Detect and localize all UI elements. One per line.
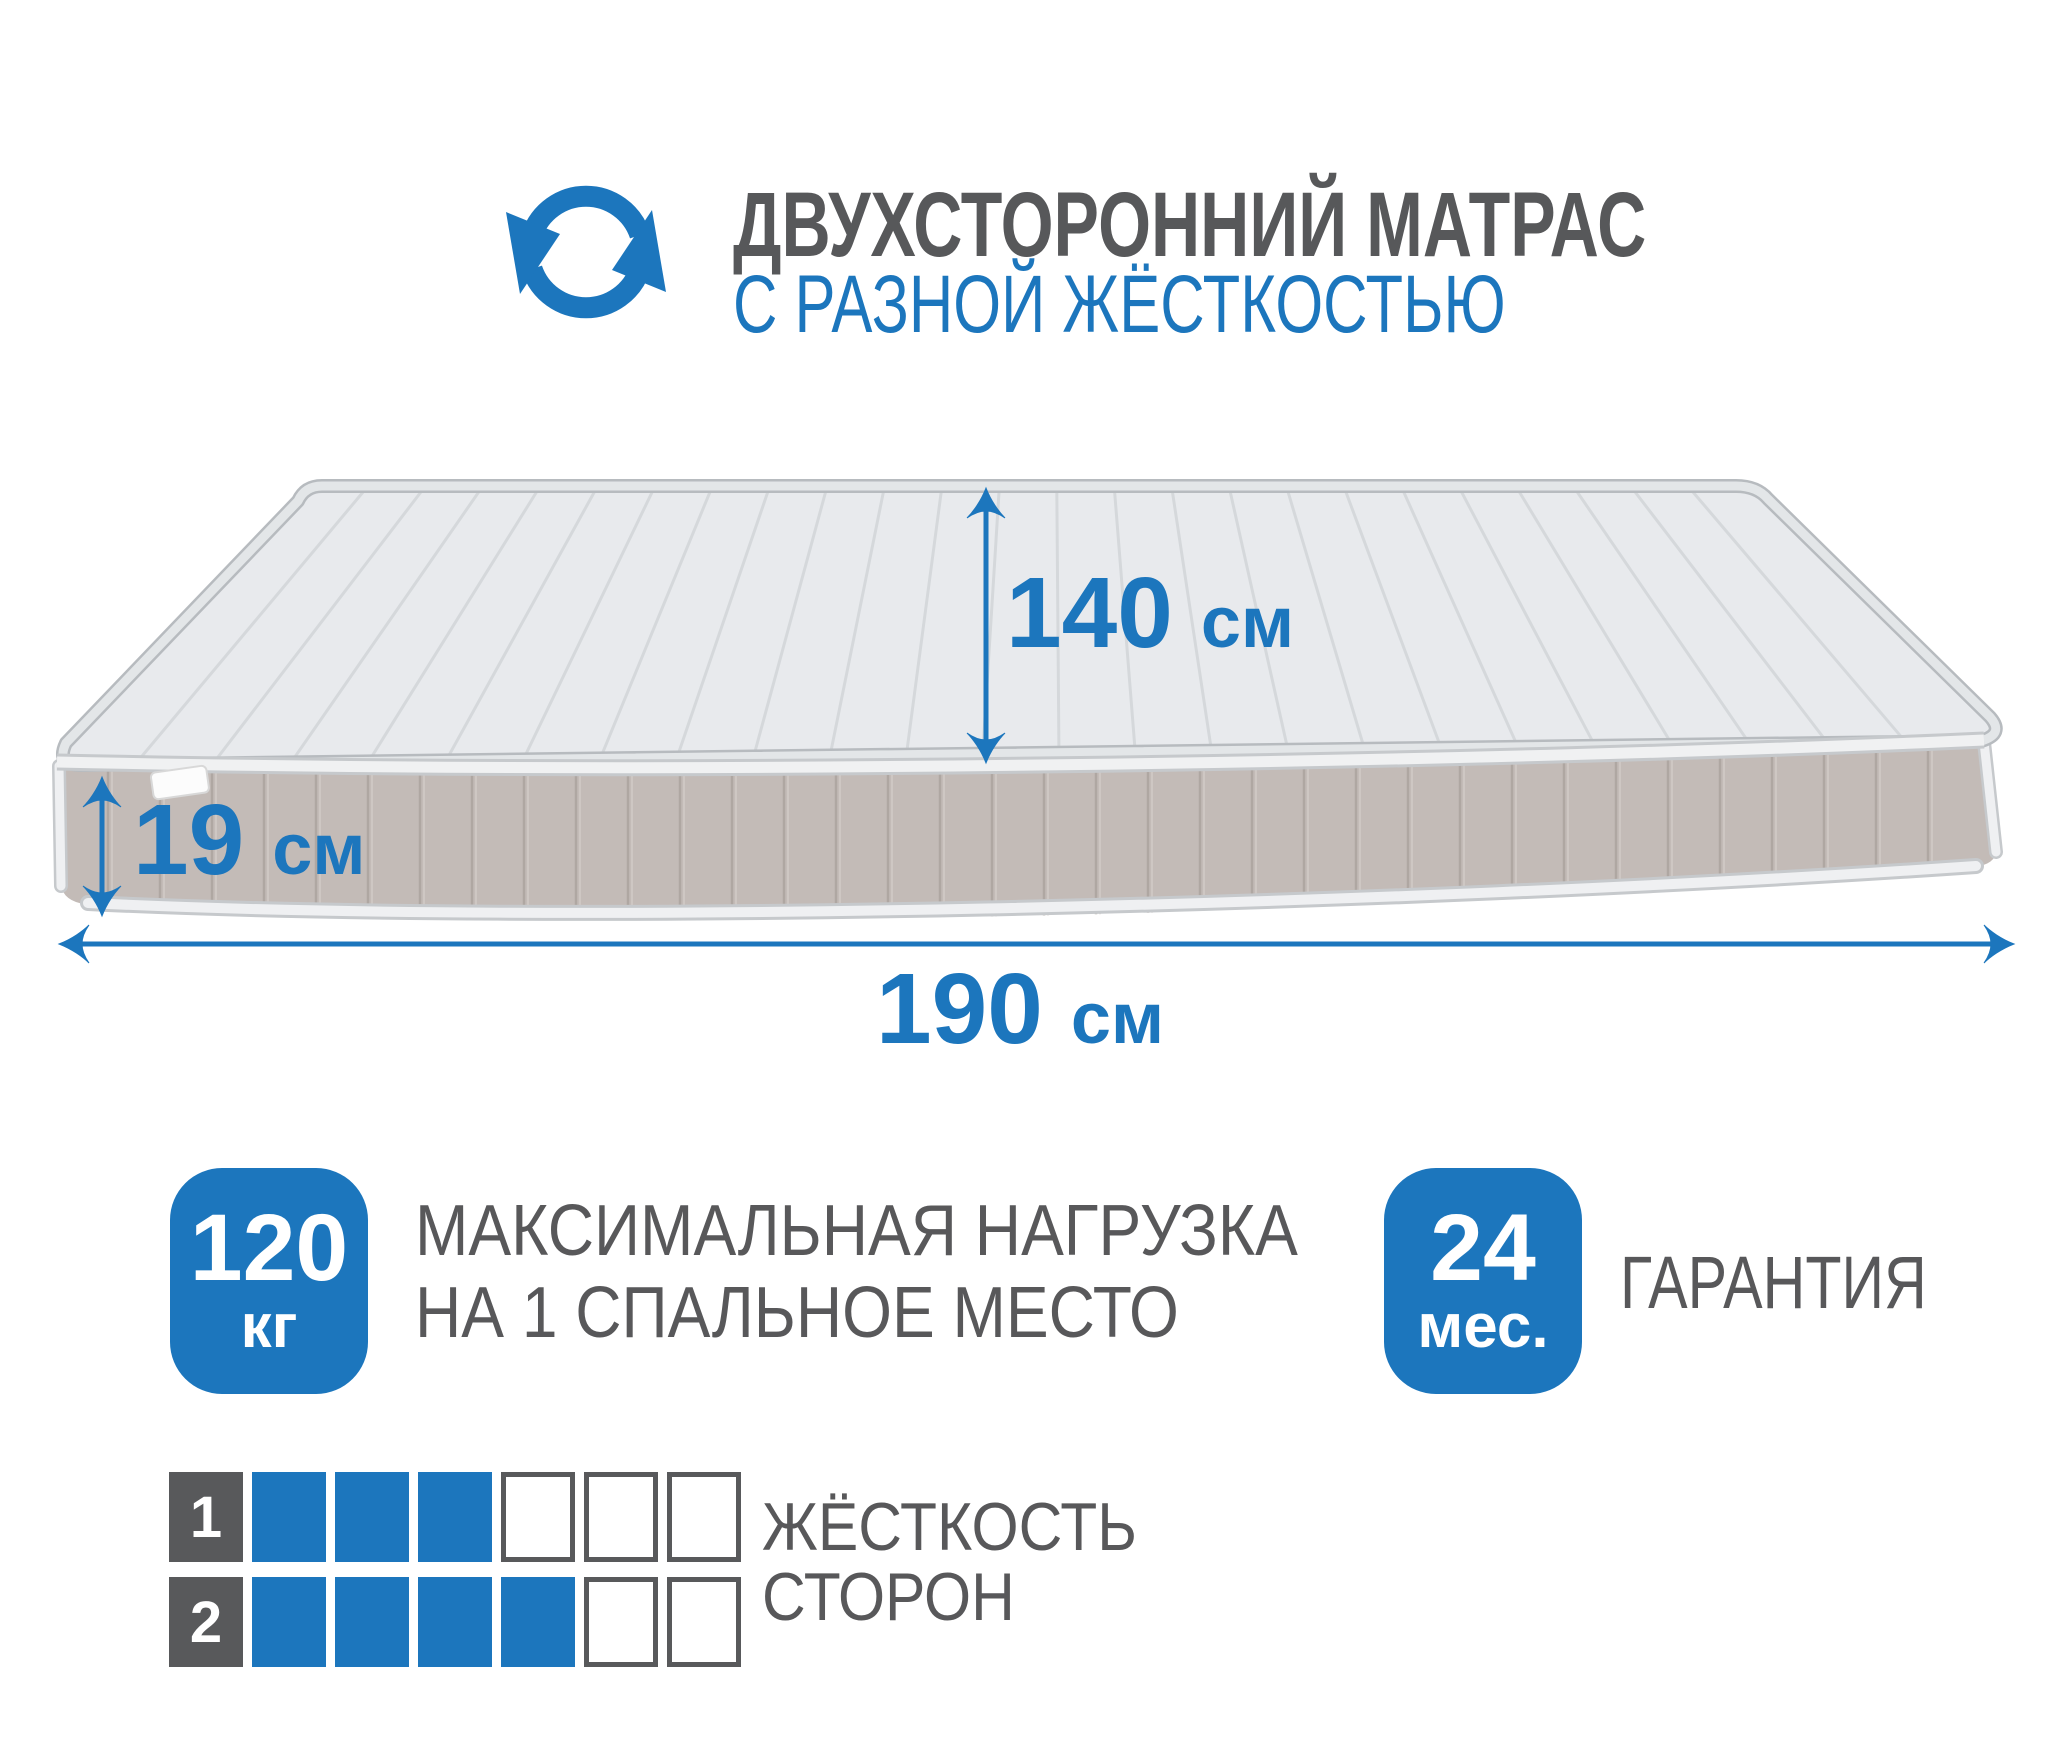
firmness-cell [418, 1472, 492, 1562]
warranty-label: ГАРАНТИЯ [1620, 1242, 2004, 1324]
warranty-badge: 24 мес. [1384, 1168, 1582, 1394]
firmness-row-side1: 1 [169, 1472, 750, 1562]
firmness-scale: 1 2 [169, 1472, 750, 1682]
infographic-canvas: ДВУХСТОРОННИЙ МАТРАС С РАЗНОЙ ЖЁСТКОСТЬЮ… [0, 0, 2048, 1757]
warranty-unit: мес. [1417, 1294, 1548, 1359]
rotate-arrows-icon [506, 196, 666, 308]
firmness-cell [667, 1577, 741, 1667]
firmness-side1-label: 1 [169, 1472, 243, 1562]
firmness-cell [584, 1472, 658, 1562]
warranty-value: 24 [1430, 1203, 1536, 1293]
height-dimension-label: 19см [133, 783, 366, 898]
firmness-label-line2: СТОРОН [762, 1558, 1046, 1636]
firmness-side1-cells [252, 1472, 750, 1562]
page-subtitle: С РАЗНОЙ ЖЁСТКОСТЬЮ [733, 258, 1763, 352]
firmness-cell [418, 1577, 492, 1667]
firmness-cell [667, 1472, 741, 1562]
max-load-badge: 120 кг [170, 1168, 368, 1394]
firmness-side2-cells [252, 1577, 750, 1667]
max-load-value: 120 [190, 1203, 349, 1293]
firmness-row-side2: 2 [169, 1577, 750, 1667]
firmness-side2-label: 2 [169, 1577, 243, 1667]
width-dimension-label: 140см [1006, 556, 1294, 671]
firmness-cell [335, 1472, 409, 1562]
firmness-cell [335, 1577, 409, 1667]
firmness-cell [501, 1472, 575, 1562]
length-dimension-label: 190см [876, 952, 1164, 1067]
firmness-cell [252, 1472, 326, 1562]
firmness-cell [584, 1577, 658, 1667]
firmness-label-line1: ЖЁСТКОСТЬ [762, 1488, 1183, 1566]
max-load-label: МАКСИМАЛЬНАЯ НАГРУЗКА НА 1 СПАЛЬНОЕ МЕСТ… [415, 1190, 1407, 1354]
max-load-unit: кг [241, 1294, 298, 1359]
firmness-cell [501, 1577, 575, 1667]
firmness-cell [252, 1577, 326, 1667]
